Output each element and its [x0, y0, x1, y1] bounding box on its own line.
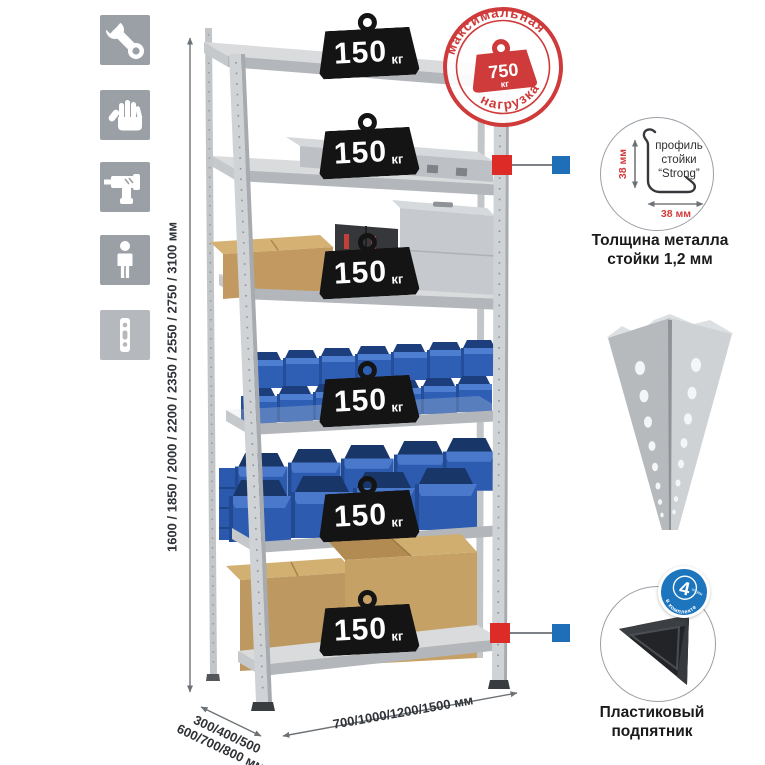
weight-badge: 150кг: [316, 470, 419, 542]
callout-connector: [510, 632, 556, 634]
stamp-unit: кг: [500, 78, 510, 89]
badge-value: 150: [333, 612, 388, 649]
badge-value: 150: [333, 135, 388, 172]
post-profile-callout: 38 мм 38 мм профиль стойки “Strong”: [600, 117, 714, 231]
callout-connector: [512, 164, 556, 166]
badge-value: 150: [333, 35, 388, 72]
badge-value: 150: [333, 383, 388, 420]
plastic-foot-caption: Пластиковый подпятник: [572, 703, 732, 741]
profile-dim-horizontal: 38 мм: [661, 208, 691, 220]
blue-marker-square: [552, 156, 570, 174]
caption-line: подпятник: [572, 722, 732, 741]
caption-line: Толщина металла: [575, 231, 745, 250]
badge-unit: кг: [391, 628, 404, 644]
badge-unit: кг: [391, 514, 404, 530]
weight-badge: 150кг: [316, 355, 419, 427]
caption-line: стойки 1,2 мм: [575, 250, 745, 269]
badge-unit: кг: [391, 51, 404, 67]
profile-label-3: “Strong”: [658, 168, 700, 180]
blue-marker-square: [552, 624, 570, 642]
red-marker-square: [492, 155, 512, 175]
height-dimension-label: 1600 / 1850 / 2000 / 2200 / 2350 / 2550 …: [165, 222, 180, 552]
weight-badge: 150кг: [316, 7, 419, 79]
badge-unit: кг: [391, 271, 404, 287]
metal-thickness-caption: Толщина металла стойки 1,2 мм: [575, 231, 745, 269]
profile-dim-vertical: 38 мм: [617, 149, 629, 179]
profile-label-1: профиль: [655, 140, 703, 152]
badge-value: 150: [333, 498, 388, 535]
badge-unit: кг: [391, 151, 404, 167]
badge-unit: кг: [391, 399, 404, 415]
badge-value: 150: [333, 255, 388, 292]
badge-number: 4: [678, 577, 693, 600]
weight-badge: 150кг: [316, 227, 419, 299]
product-diagram: максимальная нагрузка 750 кг 150кг 150кг…: [0, 0, 765, 765]
weight-badge: 150кг: [316, 107, 419, 179]
angle-post-image: [598, 308, 742, 540]
red-marker-square: [490, 623, 510, 643]
profile-label-2: стойки: [661, 154, 696, 166]
weight-badge: 150кг: [316, 584, 419, 656]
caption-line: Пластиковый: [572, 703, 732, 722]
